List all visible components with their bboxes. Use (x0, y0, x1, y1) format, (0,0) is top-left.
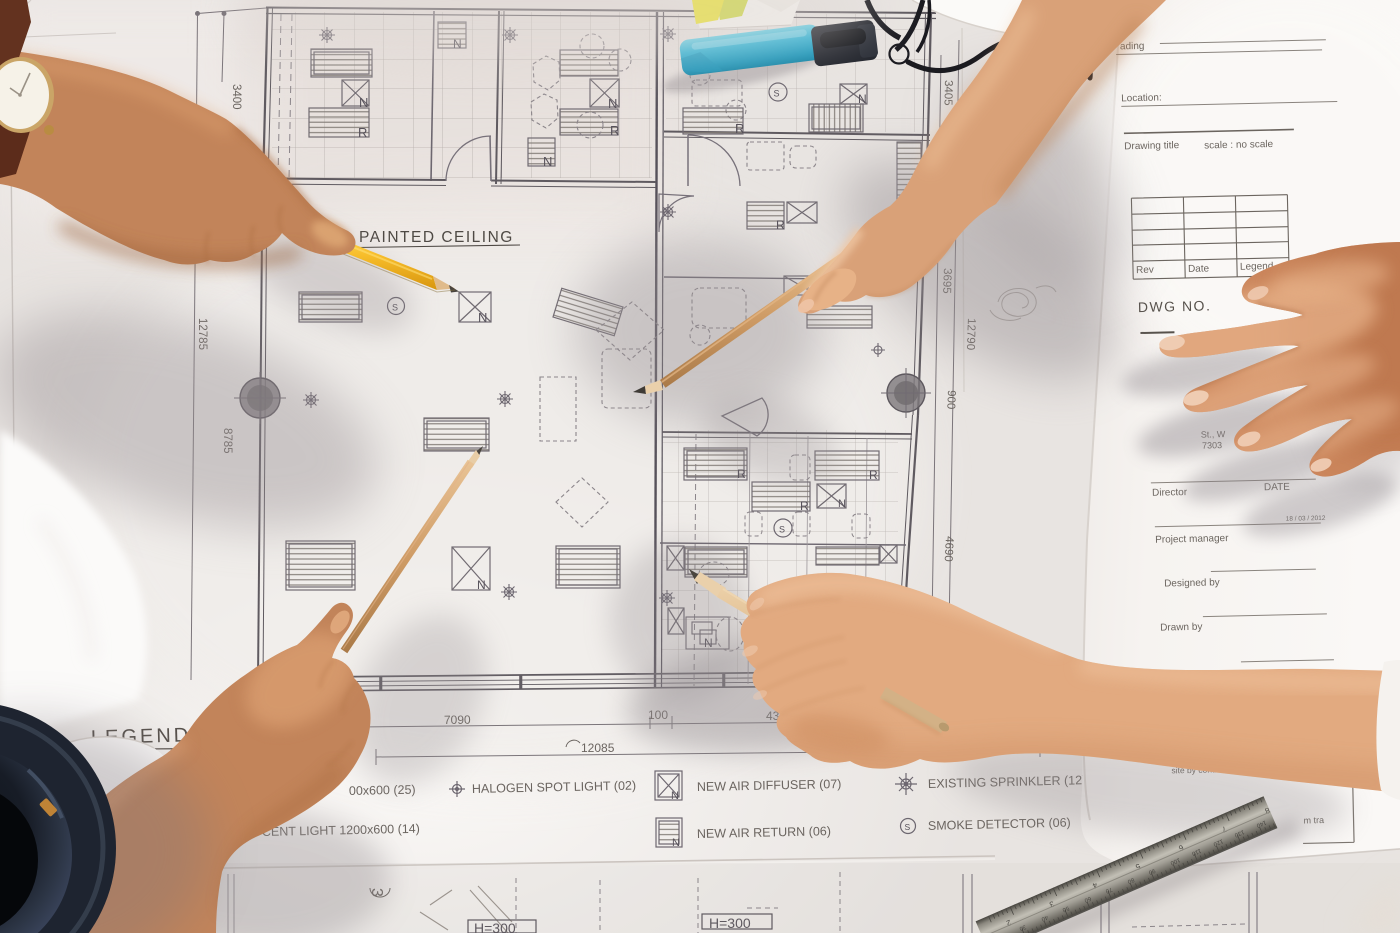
svg-text:S: S (774, 89, 780, 99)
svg-text:Date: Date (1188, 263, 1210, 274)
svg-text:R: R (735, 121, 744, 136)
svg-text:Location:: Location: (1121, 92, 1162, 104)
svg-text:Project manager: Project manager (1155, 533, 1229, 546)
svg-text:3400: 3400 (230, 84, 242, 110)
svg-text:3405: 3405 (942, 80, 954, 106)
svg-text:NEW AIR RETURN (06): NEW AIR RETURN (06) (697, 824, 831, 841)
svg-text:R: R (776, 218, 785, 232)
svg-text:12085: 12085 (581, 741, 615, 755)
svg-text:DWG NO.: DWG NO. (1138, 297, 1212, 315)
svg-text:R: R (869, 468, 878, 482)
svg-text:900: 900 (944, 390, 957, 410)
svg-text:H=300: H=300 (474, 920, 516, 933)
svg-text:S: S (779, 525, 785, 535)
svg-text:N: N (858, 92, 867, 106)
svg-text:Director: Director (1152, 487, 1188, 499)
svg-text:N: N (478, 310, 487, 325)
svg-text:Designed by: Designed by (1164, 577, 1220, 589)
svg-text:R: R (610, 123, 619, 138)
svg-text:N: N (671, 790, 679, 802)
svg-text:Drawing title: Drawing title (1124, 140, 1180, 152)
svg-text:scale : no scale: scale : no scale (1204, 139, 1274, 152)
svg-text:4690: 4690 (942, 536, 955, 562)
svg-text:N: N (477, 578, 486, 592)
svg-text:N: N (838, 498, 846, 510)
svg-text:Drawn by: Drawn by (1160, 622, 1202, 634)
svg-text:R: R (358, 125, 367, 140)
svg-text:H=300: H=300 (709, 915, 751, 931)
svg-text:N: N (672, 837, 680, 849)
svg-text:N: N (543, 154, 552, 169)
svg-text:S: S (905, 822, 911, 832)
svg-text:R: R (800, 499, 809, 513)
svg-text:PAINTED CEILING: PAINTED CEILING (359, 229, 514, 246)
svg-text:Rev: Rev (1136, 265, 1154, 276)
